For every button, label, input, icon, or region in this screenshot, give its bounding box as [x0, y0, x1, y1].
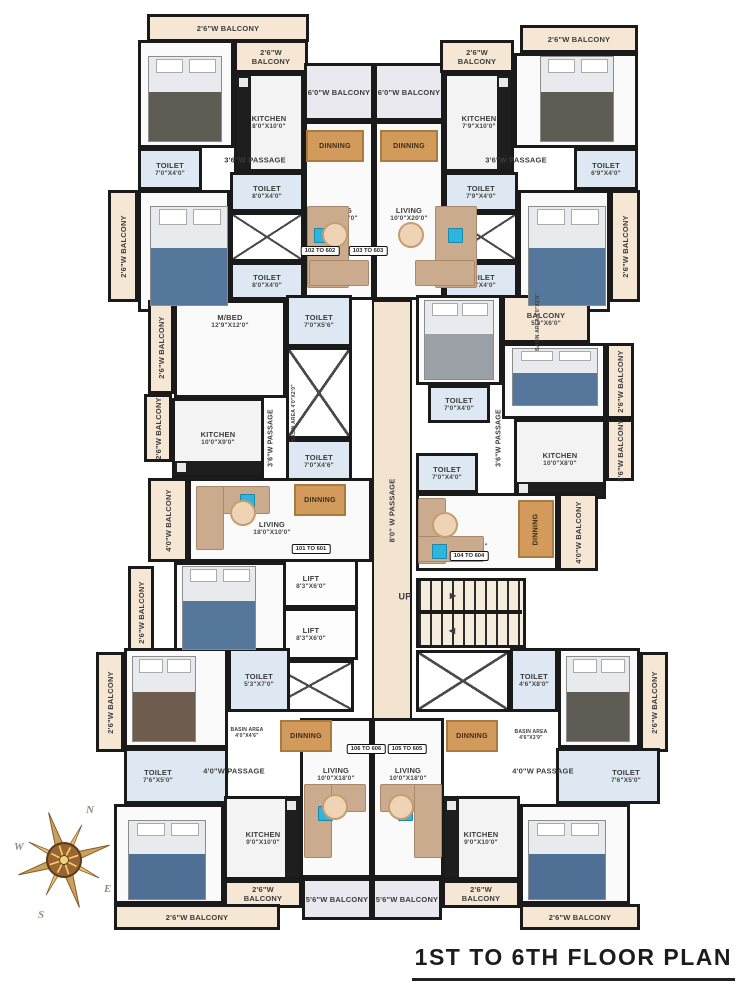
balcony-103-small: 2'6"W BALCONY [440, 40, 514, 73]
furniture-bed [528, 820, 606, 900]
kitchen-105: KITCHEN9'0"X10'0" [442, 796, 520, 880]
furniture-round [388, 794, 414, 820]
balcony-right-4: 4'0"W BALCONY [558, 493, 598, 571]
balcony-right-2-label: 2'6"W BALCONY [616, 350, 625, 413]
unit-range-badge: 103 TO 603 [349, 246, 388, 256]
compass-n-label: N [85, 804, 95, 816]
toilet-104-b-label: TOILET7'0"X4'0" [432, 465, 462, 482]
toilet-center: TOILET7'0"X4'6" [286, 439, 352, 483]
toilet-102-b-label: TOILET8'0"X4'0" [252, 184, 282, 201]
balcony-102-small: 2'6"W BALCONY [234, 40, 308, 73]
balcony-6-right-label: 6'0"W BALCONY [378, 88, 441, 97]
toilet-106-a-label: TOILET5'3"X7'0" [244, 672, 274, 689]
living-103-label: LIVING10'0"X20'0" [390, 206, 427, 223]
balcony-left-2: 2'6"W BALCONY [148, 300, 174, 394]
balcony-left-4-label: 4'0"W BALCONY [164, 489, 173, 552]
furniture-table: DINNING [380, 130, 438, 162]
balcony-103-small-label: 2'6"W BALCONY [458, 48, 496, 66]
passage-main-label: 8'0" W PASSAGE [388, 478, 397, 542]
living-106-label: LIVING10'0"X18'0" [317, 766, 354, 783]
plan-label: BASIN AREA 4'0"X2'0" [535, 293, 541, 351]
kitchen-101-counter [175, 461, 261, 475]
kitchen-104: KITCHEN10'0"X8'0" [514, 419, 606, 499]
balcony-left-1: 2'6"W BALCONY [108, 190, 138, 302]
furniture-bed [566, 656, 630, 742]
balcony-104-label: BALCONY5'3"X6'0" [527, 311, 565, 328]
balcony-102-top-label: 2'6"W BALCONY [197, 24, 260, 33]
page-title: 1ST TO 6TH FLOOR PLAN [412, 944, 735, 981]
balcony-right-3: 2'6"W BALCONY [606, 419, 634, 481]
balcony-106-56-label: 5'6"W BALCONY [306, 895, 369, 904]
balcony-102-small-label: 2'6"W BALCONY [252, 48, 290, 66]
mbed-101-label: M/BED12'9"X12'0" [211, 313, 248, 330]
duct-102 [230, 212, 304, 262]
toilet-106-a: TOILET5'3"X7'0" [228, 648, 290, 712]
mbed-101: M/BED12'9"X12'0" [174, 300, 286, 398]
toilet-105-a-label: TOILET4'6"X8'0" [519, 672, 549, 689]
balcony-105-56-label: 5'6"W BALCONY [376, 895, 439, 904]
balcony-right-4-label: 4'0"W BALCONY [574, 501, 583, 564]
kitchen-101-label: KITCHEN10'0"X9'0" [201, 430, 236, 447]
kitchen-105-counter [445, 799, 459, 877]
passage-main: 8'0" W PASSAGE [372, 300, 412, 720]
plan-label: 3'6"W PASSAGE [496, 409, 505, 467]
kitchen-105-label: KITCHEN9'0"X10'0" [464, 830, 499, 847]
balcony-106-bottom: 2'6"W BALCONY [114, 904, 280, 930]
toilet-102-c-label: TOILET8'0"X4'0" [252, 273, 282, 290]
furniture-table: DINNING [294, 484, 346, 516]
furniture-round [322, 794, 348, 820]
furniture-bed [512, 348, 598, 406]
toilet-105-a: TOILET4'6"X8'0" [510, 648, 558, 712]
furniture-bed [148, 56, 222, 142]
floor-plan-page: 2'6"W BALCONYM/BED10'6"X13'0"2'6"W BALCO… [0, 0, 743, 1000]
balcony-left-5-label: 2'6"W BALCONY [137, 581, 146, 644]
furniture-round [230, 500, 256, 526]
stair-up-arrow-icon: ▶ [450, 591, 456, 601]
compass-rose-icon: N W E S [12, 796, 116, 924]
plan-label: 3'6"W PASSAGE [224, 155, 286, 164]
balcony-left-6: 2'6"W BALCONY [96, 652, 124, 752]
balcony-left-5: 2'6"W BALCONY [128, 566, 154, 658]
balcony-left-6-label: 2'6"W BALCONY [106, 671, 115, 734]
unit-range-badge: 105 TO 605 [388, 744, 427, 754]
furniture-bed [150, 206, 228, 306]
furniture-wallbar [418, 610, 522, 614]
furniture-round [398, 222, 424, 248]
balcony-105-small-label: 2'6"W BALCONY [462, 885, 500, 903]
toilet-106-b-label: TOILET7'6"X5'0" [143, 768, 173, 785]
balcony-102-top: 2'6"W BALCONY [147, 14, 309, 42]
furniture-bed [540, 56, 614, 142]
toilet-105-b: TOILET7'6"X5'0" [556, 748, 660, 804]
living-105-label: LIVING10'0"X18'0" [389, 766, 426, 783]
toilet-102-a-label: TOILET7'0"X4'0" [155, 161, 185, 178]
kitchen-106-label: KITCHEN9'0"X10'0" [246, 830, 281, 847]
toilet-103-b-label: TOILET7'9"X4'0" [466, 184, 496, 201]
plan-label: 4'0"W PASSAGE [203, 766, 265, 775]
furniture-table: DINNING [518, 500, 554, 558]
balcony-106-56: 5'6"W BALCONY [302, 878, 372, 920]
balcony-103-top: 2'6"W BALCONY [520, 25, 638, 53]
furniture-bed [528, 206, 606, 306]
stair-down-arrow-icon: ◀ [449, 626, 455, 636]
balcony-left-2-label: 2'6"W BALCONY [157, 316, 166, 379]
balcony-106-small-label: 2'6"W BALCONY [244, 885, 282, 903]
plan-label: 4'0"W PASSAGE [512, 766, 574, 775]
toilet-106-b: TOILET7'6"X5'0" [124, 748, 228, 804]
furniture-table: DINNING [280, 720, 332, 752]
furniture-round [432, 512, 458, 538]
balcony-105-56: 5'6"W BALCONY [372, 878, 442, 920]
compass-e-label: E [103, 883, 111, 895]
compass-s-label: S [38, 909, 44, 921]
balcony-6-left-label: 6'0"W BALCONY [308, 88, 371, 97]
toilet-103-a: TOILET6'9"X4'0" [574, 148, 638, 190]
furniture-table: DINNING [446, 720, 498, 752]
toilet-103-a-label: TOILET6'9"X4'0" [591, 161, 621, 178]
furniture-round [322, 222, 348, 248]
toilet-104-b: TOILET7'0"X4'0" [416, 453, 478, 493]
balcony-right-1-label: 2'6"W BALCONY [621, 215, 630, 278]
balcony-right-1: 2'6"W BALCONY [610, 190, 640, 302]
balcony-left-3-label: 2'6"W BALCONY [154, 397, 163, 460]
toilet-104-a: TOILET7'0"X4'0" [428, 385, 490, 423]
toilet-center-top-label: TOILET7'0"X5'6" [304, 313, 334, 330]
balcony-left-1-label: 2'6"W BALCONY [119, 215, 128, 278]
furniture-table: DINNING [306, 130, 364, 162]
toilet-center-top: TOILET7'0"X5'6" [286, 295, 352, 347]
furniture-accent [448, 228, 463, 243]
furniture-sofa [309, 260, 369, 286]
balcony-6-left: 6'0"W BALCONY [304, 63, 374, 121]
plan-label: BASIN AREA 4'6"X3'9" [515, 729, 548, 742]
plan-label: 3'6"W PASSAGE [485, 155, 547, 164]
balcony-right-5-label: 2'6"W BALCONY [650, 671, 659, 734]
toilet-center-label: TOILET7'0"X4'6" [304, 453, 334, 470]
kitchen-106-counter [285, 799, 299, 877]
furniture-sofa [196, 486, 224, 550]
furniture-bed [424, 300, 494, 380]
balcony-right-3-label: 2'6"W BALCONY [616, 419, 625, 482]
balcony-right-2: 2'6"W BALCONY [606, 343, 634, 419]
balcony-103-top-label: 2'6"W BALCONY [548, 35, 611, 44]
balcony-left-3: 2'6"W BALCONY [144, 394, 172, 462]
duct-stair [416, 650, 510, 712]
kitchen-103-label: KITCHEN7'9"X10'0" [462, 114, 497, 131]
balcony-6-right: 6'0"W BALCONY [374, 63, 444, 121]
furniture-accent [432, 544, 447, 559]
lift-1-label: LIFT8'3"X6'0" [296, 574, 326, 591]
furniture-sofa [415, 260, 475, 286]
living-101-label: LIVING18'0"X10'0" [253, 520, 290, 537]
kitchen-102-label: KITCHEN8'0"X10'0" [252, 114, 287, 131]
balcony-105-bottom-label: 2'6"W BALCONY [549, 913, 612, 922]
toilet-104-a-label: TOILET7'0"X4'0" [444, 396, 474, 413]
unit-range-badge: 101 TO 601 [292, 544, 331, 554]
plan-label: BASIN AREA 4'0"X4'6" [231, 727, 264, 740]
balcony-right-5: 2'6"W BALCONY [640, 652, 668, 752]
kitchen-101: KITCHEN10'0"X9'0" [172, 398, 264, 478]
toilet-102-a: TOILET7'0"X4'0" [138, 148, 202, 190]
plan-label: 3'6"W PASSAGE [268, 409, 277, 467]
furniture-bed [132, 656, 196, 742]
unit-range-badge: 106 TO 606 [347, 744, 386, 754]
toilet-102-b: TOILET8'0"X4'0" [230, 172, 304, 212]
kitchen-106: KITCHEN9'0"X10'0" [224, 796, 302, 880]
balcony-105-small: 2'6"W BALCONY [442, 880, 520, 908]
unit-range-badge: 102 TO 602 [301, 246, 340, 256]
plan-label: BASIN AREA 4'0"X2'0" [291, 384, 297, 442]
lift-2-label: LIFT8'3"X6'0" [296, 626, 326, 643]
unit-range-badge: 104 TO 604 [450, 551, 489, 561]
kitchen-104-label: KITCHEN10'0"X8'0" [543, 451, 578, 468]
toilet-105-b-label: TOILET7'6"X5'0" [611, 768, 641, 785]
compass-w-label: W [14, 841, 25, 853]
balcony-105-bottom: 2'6"W BALCONY [520, 904, 640, 930]
balcony-left-4: 4'0"W BALCONY [148, 478, 188, 562]
furniture-bed [182, 566, 256, 650]
furniture-bed [128, 820, 206, 900]
balcony-106-bottom-label: 2'6"W BALCONY [166, 913, 229, 922]
furniture-sofa [414, 784, 442, 858]
plan-label: UP [399, 591, 412, 602]
